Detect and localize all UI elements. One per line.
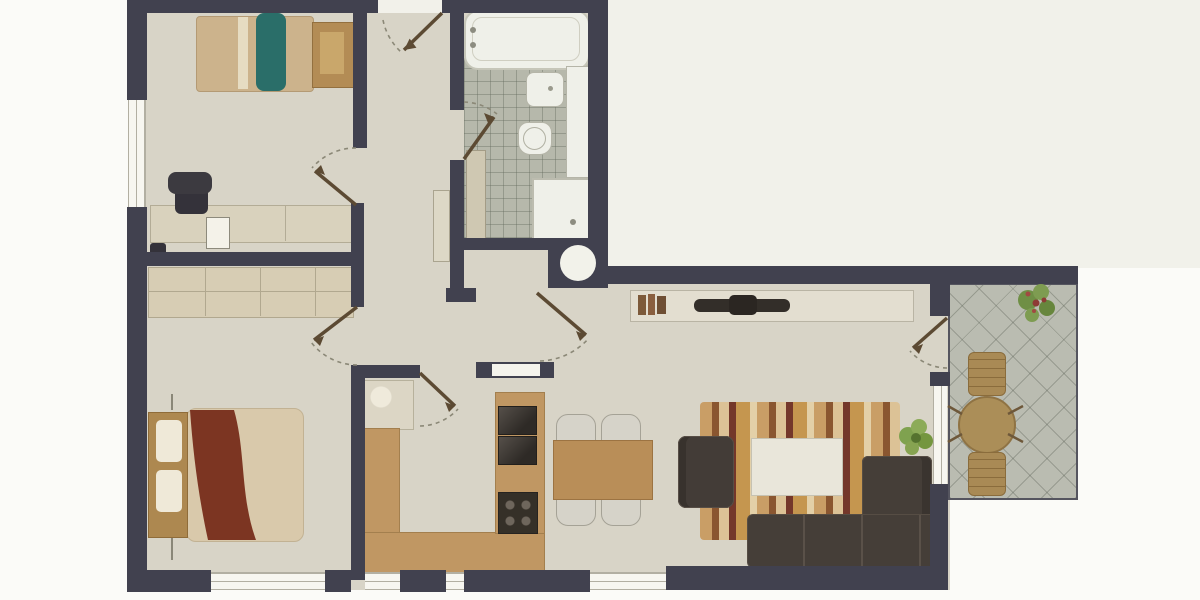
door-leaves	[314, 13, 947, 406]
red-blanket	[190, 410, 256, 540]
living-plant	[899, 419, 933, 455]
overlay-annotations	[0, 0, 1200, 600]
door-swing-arcs	[311, 20, 947, 426]
floor-plan	[0, 0, 1200, 600]
balcony-plant	[1018, 284, 1055, 322]
door-leaf-tips	[314, 38, 923, 412]
balcony-chair-armrests	[948, 406, 1023, 442]
